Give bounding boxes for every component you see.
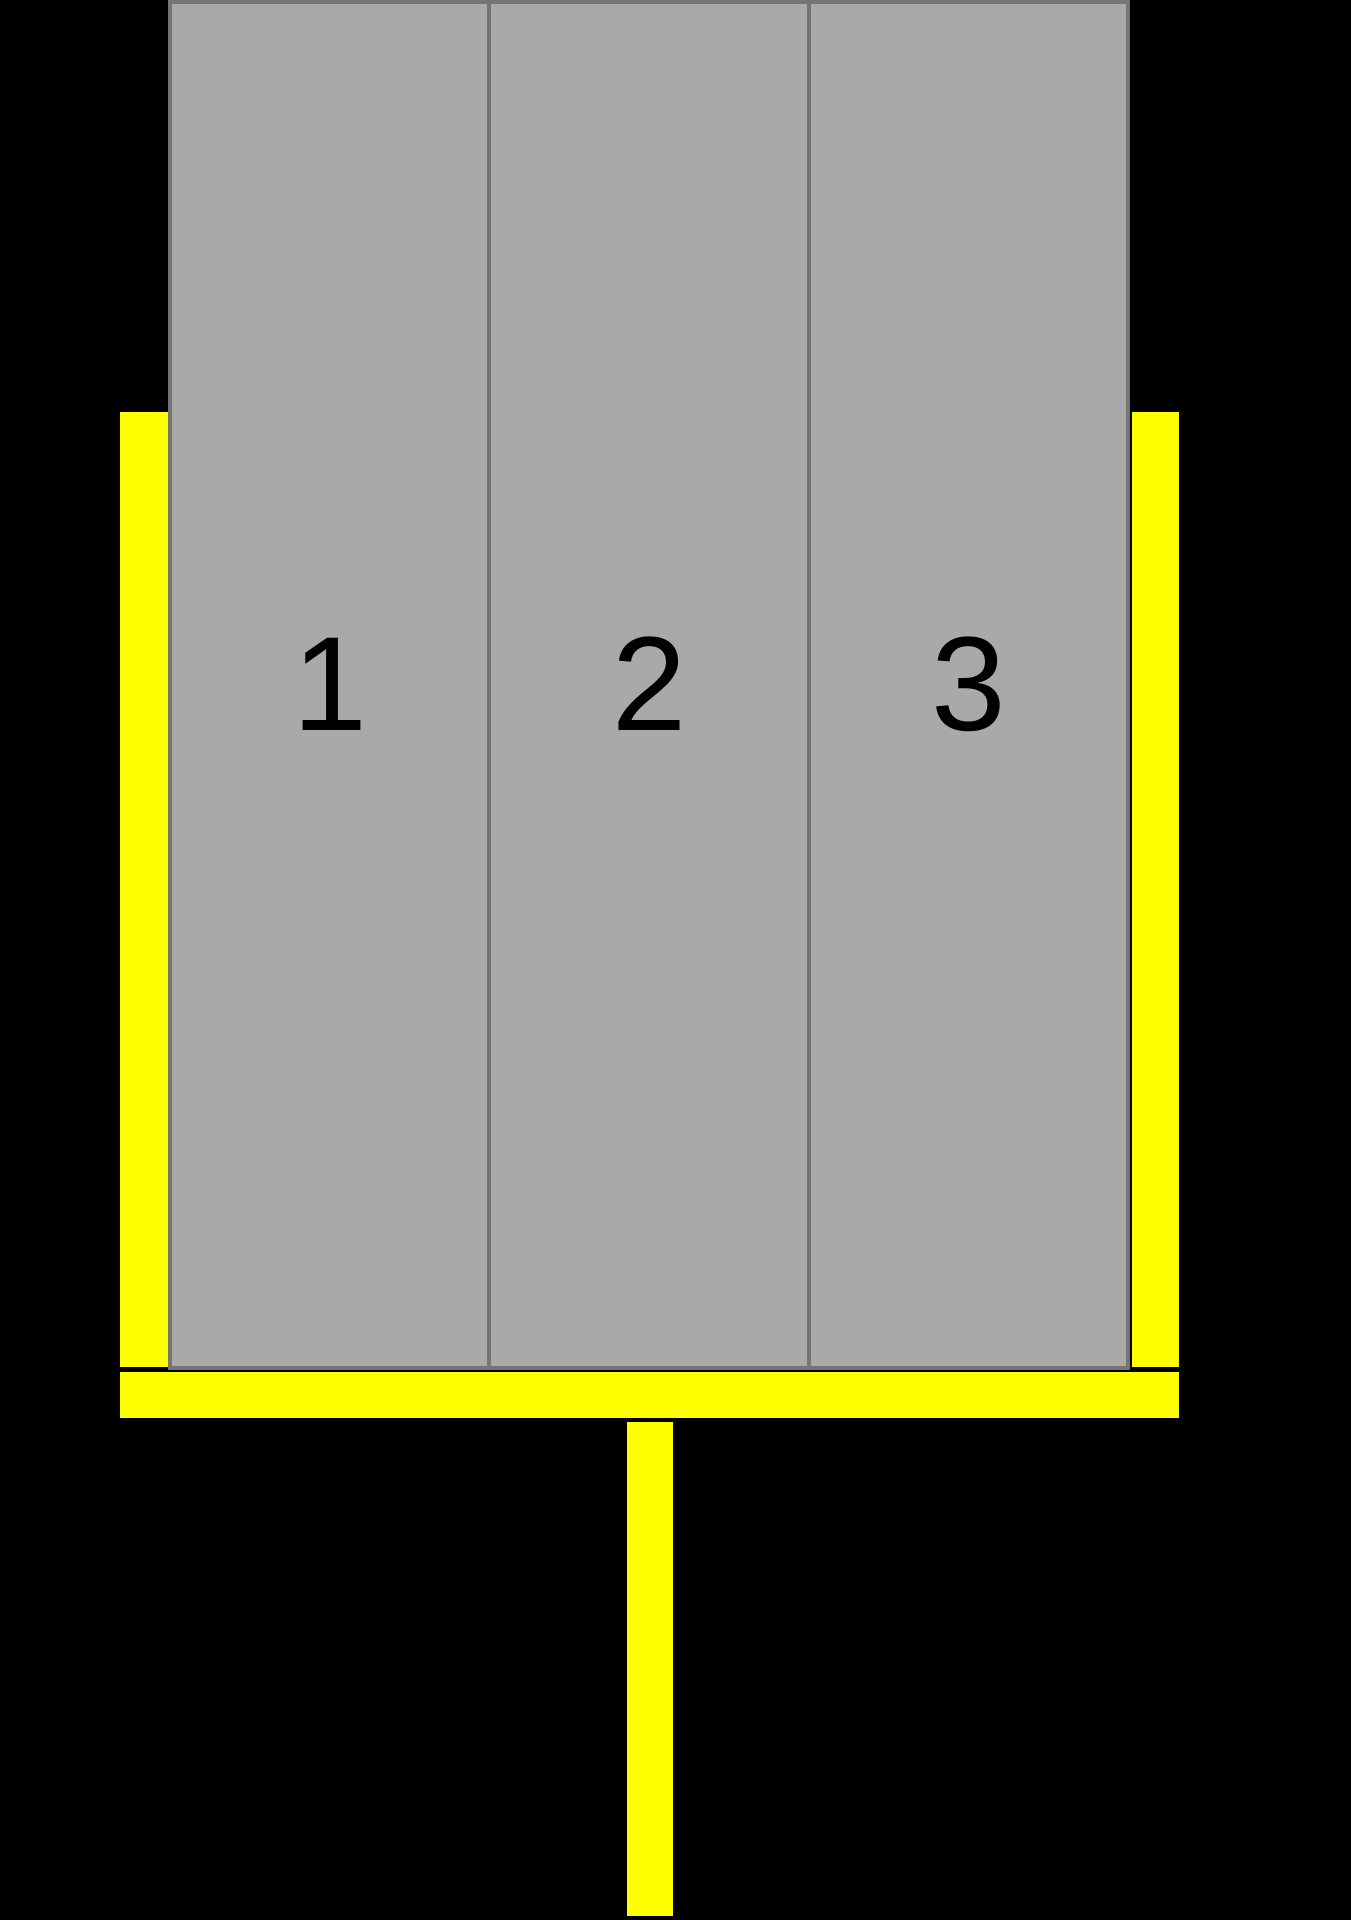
holder-base (120, 1372, 1179, 1418)
holder-stem (627, 1422, 673, 1916)
holder-left-wall (120, 412, 168, 1367)
slab-1-label: 1 (292, 618, 367, 752)
holder-right-wall (1132, 412, 1179, 1367)
slab-3-label: 3 (931, 618, 1006, 752)
slab-1: 1 (172, 4, 487, 1366)
slab-2-label: 2 (612, 618, 687, 752)
slab-3: 3 (811, 4, 1126, 1366)
diagram-canvas: 1 2 3 (0, 0, 1351, 1920)
slab-2: 2 (491, 4, 806, 1366)
slab-stack: 1 2 3 (168, 0, 1130, 1370)
